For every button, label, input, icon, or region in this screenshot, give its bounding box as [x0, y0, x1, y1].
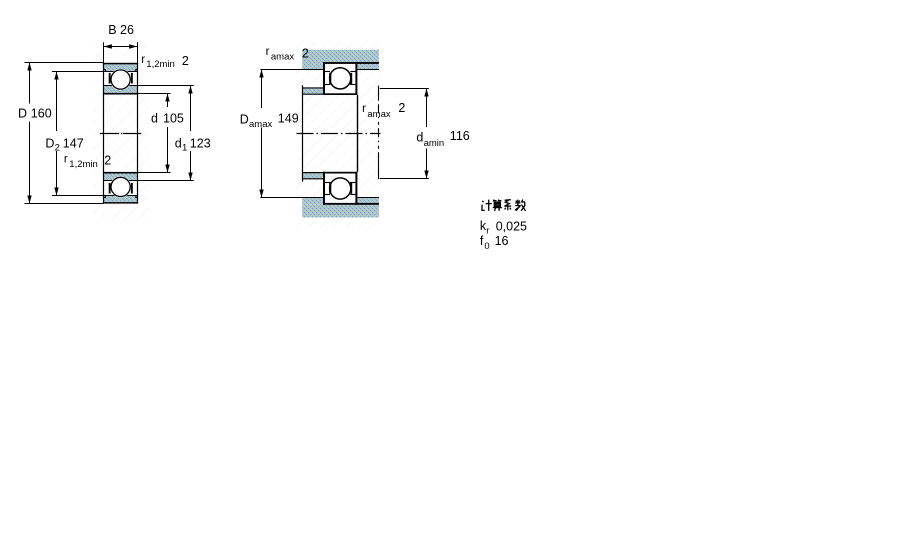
svg-text:r: r — [362, 103, 366, 115]
svg-text:B: B — [108, 23, 116, 37]
svg-text:2: 2 — [302, 47, 309, 61]
svg-text:116: 116 — [450, 129, 470, 143]
svg-text:0: 0 — [484, 241, 489, 252]
svg-text:1: 1 — [182, 143, 187, 154]
svg-text:r: r — [486, 225, 489, 236]
svg-text:d: d — [416, 131, 423, 145]
svg-text:amax: amax — [249, 119, 272, 130]
svg-text:amax: amax — [367, 109, 390, 120]
svg-text:D: D — [45, 136, 54, 150]
svg-text:2: 2 — [55, 142, 60, 153]
svg-text:r: r — [141, 54, 145, 66]
svg-text:0,025: 0,025 — [496, 220, 527, 234]
svg-text:amin: amin — [424, 138, 445, 149]
svg-text:r: r — [64, 153, 68, 165]
svg-text:f: f — [480, 234, 484, 248]
svg-text:160: 160 — [31, 107, 52, 121]
svg-text:d: d — [175, 137, 182, 151]
svg-text:D: D — [240, 113, 249, 127]
svg-text:26: 26 — [120, 23, 134, 37]
svg-text:d: d — [151, 112, 158, 126]
svg-text:123: 123 — [190, 137, 211, 151]
svg-text:105: 105 — [163, 112, 184, 126]
svg-text:1,2min: 1,2min — [146, 59, 175, 70]
svg-text:1,2min: 1,2min — [69, 159, 98, 170]
svg-text:r: r — [266, 46, 270, 58]
svg-text:D: D — [18, 107, 27, 121]
svg-text:amax: amax — [271, 52, 294, 63]
svg-text:147: 147 — [63, 136, 84, 150]
svg-text:16: 16 — [495, 234, 509, 248]
svg-text:2: 2 — [398, 101, 405, 115]
svg-text:149: 149 — [278, 112, 299, 126]
svg-text:2: 2 — [182, 54, 189, 68]
svg-text:2: 2 — [104, 154, 111, 168]
